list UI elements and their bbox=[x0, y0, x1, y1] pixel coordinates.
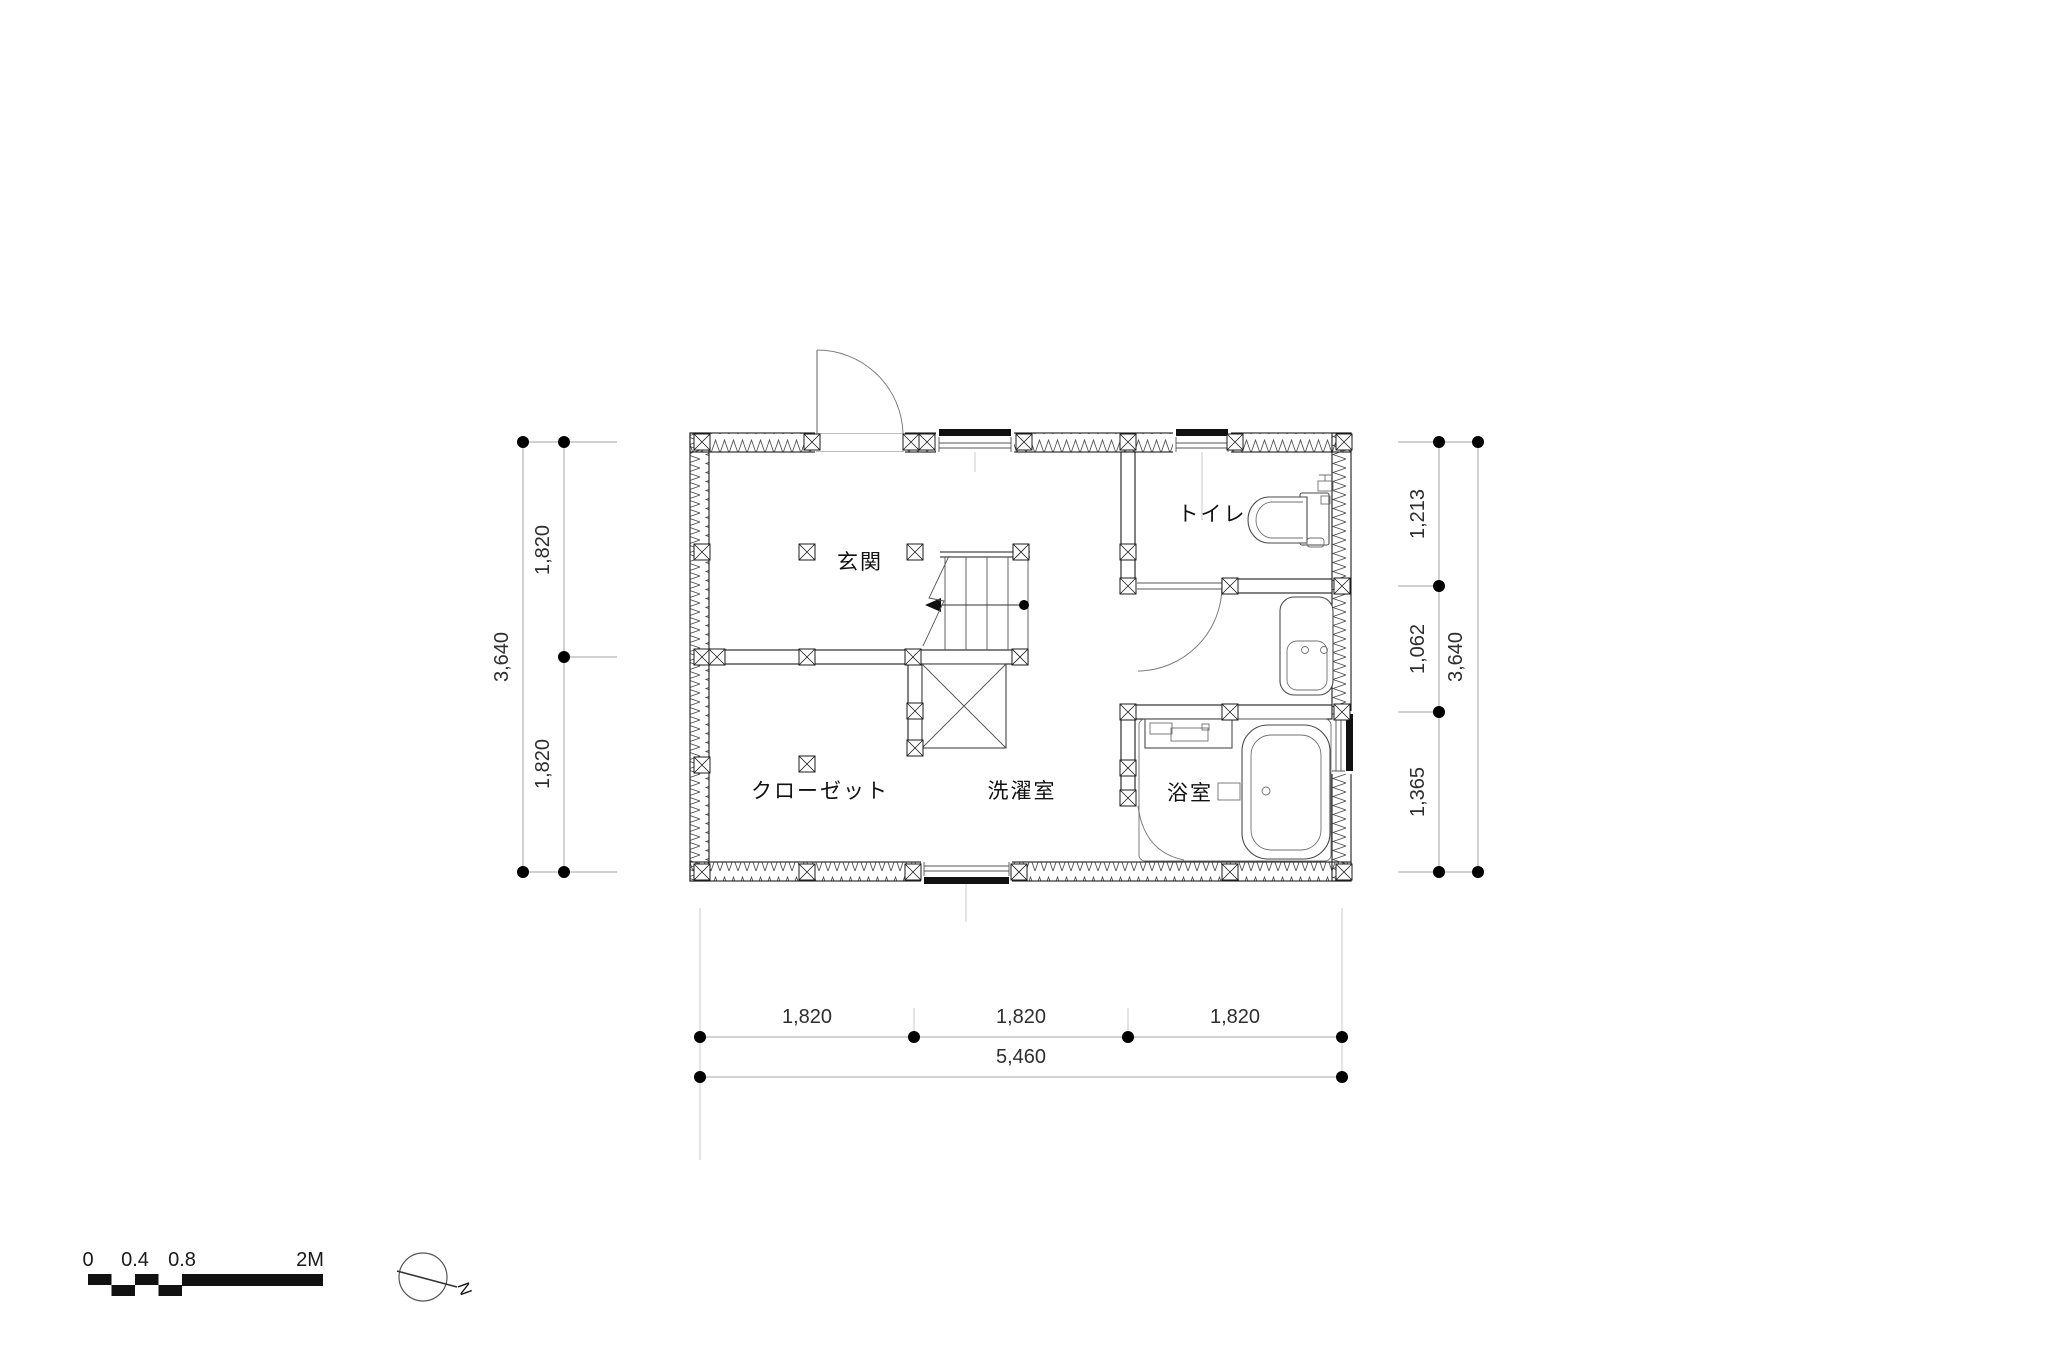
dim-left-seg-0: 1,820 bbox=[532, 525, 554, 575]
window-bottom-laundry bbox=[924, 862, 1009, 922]
stairs bbox=[923, 552, 1030, 650]
room-label-bath: 浴室 bbox=[1167, 782, 1213, 805]
room-label-closet: クローゼット bbox=[751, 780, 889, 803]
north-label: N bbox=[453, 1280, 475, 1298]
scale-tick-1: 0.4 bbox=[121, 1249, 149, 1271]
floor-plan-canvas: 玄関 トイレ クローゼット 洗濯室 浴室 3,640 1,820 1,820 1… bbox=[0, 0, 2048, 1365]
dim-right-seg-2: 1,365 bbox=[1407, 767, 1429, 817]
dim-bottom-total: 5,460 bbox=[996, 1046, 1046, 1068]
room-label-toilet: トイレ bbox=[1178, 503, 1247, 526]
bath-stool bbox=[1218, 783, 1240, 800]
dim-right-total: 3,640 bbox=[1445, 632, 1467, 682]
bathtub bbox=[1242, 725, 1330, 859]
toilet-fixture bbox=[1248, 475, 1333, 547]
washroom-door bbox=[1137, 583, 1222, 671]
dimension-left: 3,640 1,820 1,820 bbox=[491, 436, 617, 878]
dim-left-total: 3,640 bbox=[491, 632, 513, 682]
dim-right-seg-1: 1,062 bbox=[1407, 624, 1429, 674]
scale-bar: 0 0.4 0.8 2M bbox=[82, 1249, 323, 1296]
dim-bottom-seg-1: 1,820 bbox=[996, 1006, 1046, 1028]
dim-left-seg-1: 1,820 bbox=[532, 739, 554, 789]
scale-tick-3: 2M bbox=[296, 1249, 324, 1271]
bath-door bbox=[1138, 806, 1184, 860]
floor-plan-page: 玄関 トイレ クローゼット 洗濯室 浴室 3,640 1,820 1,820 1… bbox=[0, 0, 2048, 1365]
scale-tick-2: 0.8 bbox=[168, 1249, 196, 1271]
void-x-shaft bbox=[922, 664, 1006, 748]
north-arrow-icon: N bbox=[397, 1253, 475, 1301]
washbasin-vanity bbox=[1280, 597, 1333, 695]
room-label-laundry: 洗濯室 bbox=[988, 780, 1057, 803]
shower-counter bbox=[1145, 719, 1232, 748]
scale-tick-0: 0 bbox=[82, 1249, 93, 1271]
dimension-right: 1,213 1,062 1,365 3,640 bbox=[1398, 436, 1484, 878]
dim-right-seg-0: 1,213 bbox=[1407, 489, 1429, 539]
room-label-genkan: 玄関 bbox=[837, 551, 883, 574]
dimension-bottom: 1,820 1,820 1,820 5,460 bbox=[694, 908, 1348, 1160]
dim-bottom-seg-0: 1,820 bbox=[782, 1006, 832, 1028]
dim-bottom-seg-2: 1,820 bbox=[1210, 1006, 1260, 1028]
